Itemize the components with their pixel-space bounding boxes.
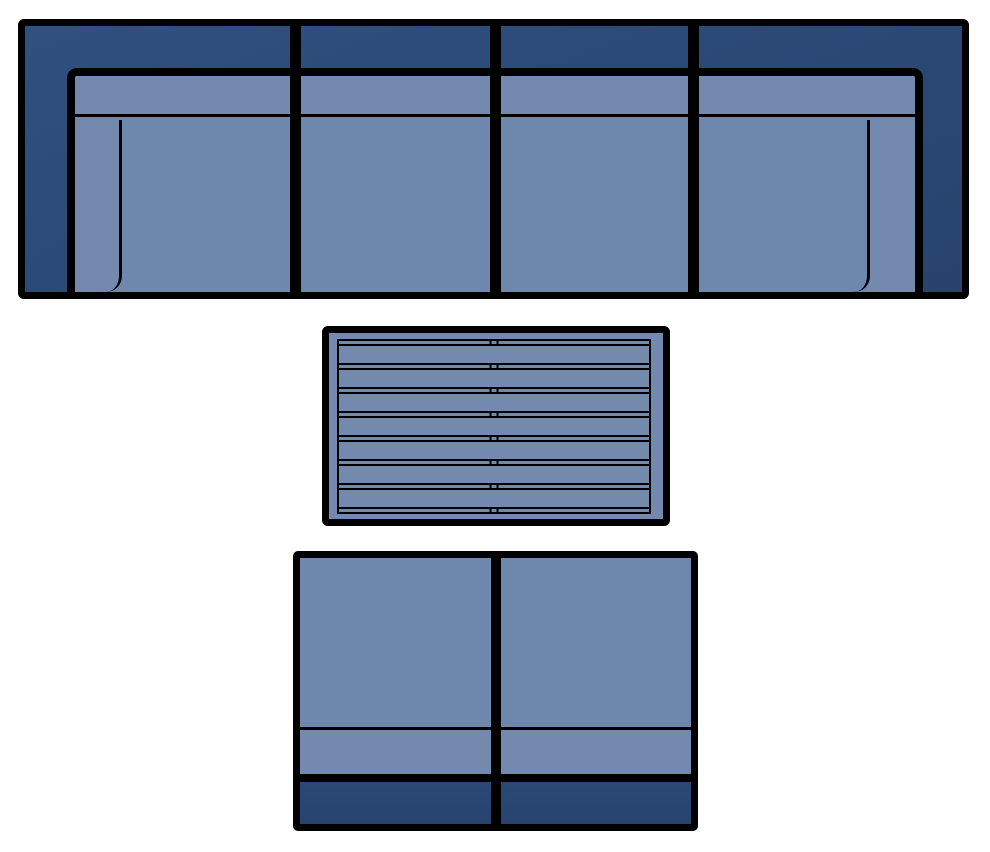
bench-section-armless-seat <box>300 558 496 824</box>
bench-back-frame <box>496 782 692 824</box>
sofa-right-arm-seam <box>852 120 870 292</box>
sofa-back-cushion <box>301 76 490 117</box>
bench-seat-cushion <box>496 558 692 727</box>
table-center-tick <box>490 461 499 464</box>
sofa-back-cushion <box>75 76 290 117</box>
sofa-back-cushion <box>699 76 915 117</box>
sofa-section-left-arm-seat <box>75 76 290 292</box>
table-center-tick <box>490 365 499 368</box>
sofa-section-armless-seat <box>301 76 490 292</box>
bench-back-cushion <box>496 730 692 774</box>
table-slat <box>339 346 649 363</box>
bench-back-frame-line <box>496 774 692 782</box>
table-slat-separator <box>339 363 649 370</box>
table-slat-separator <box>339 459 649 466</box>
sofa-seat-cushion <box>501 117 688 292</box>
bench-back-frame-line <box>300 774 496 782</box>
table-slat <box>339 466 649 483</box>
table-slat-separator <box>339 387 649 394</box>
bench-section-armless-seat <box>496 558 692 824</box>
table-slat <box>339 490 649 507</box>
sofa-seat-cushion <box>301 117 490 292</box>
sofa-left-arm-cushion <box>75 120 122 292</box>
coffee-table <box>322 326 670 526</box>
two-seat-bench <box>293 551 698 831</box>
sofa-section-divider <box>490 19 501 299</box>
table-center-tick <box>490 509 499 512</box>
table-center-tick <box>490 389 499 392</box>
sofa-section-armless-seat <box>501 76 688 292</box>
sofa-section-divider <box>688 19 699 299</box>
table-center-tick <box>490 341 499 344</box>
table-slat-separator <box>339 435 649 442</box>
sofa-section-right-arm-seat <box>699 76 915 292</box>
bench-seat-cushion <box>300 558 496 727</box>
bench-section-divider <box>491 558 501 824</box>
table-slat <box>339 394 649 411</box>
table-slat <box>339 418 649 435</box>
coffee-table-slat-panel <box>337 339 651 514</box>
table-center-tick <box>490 485 499 488</box>
table-slat <box>339 442 649 459</box>
bench-back-cushion <box>300 730 496 774</box>
table-slat-separator <box>339 339 649 346</box>
table-slat-separator <box>339 483 649 490</box>
table-slat <box>339 370 649 387</box>
furniture-plan-canvas <box>0 0 990 852</box>
sofa <box>18 19 969 299</box>
sofa-back-cushion <box>501 76 688 117</box>
table-slat-separator <box>339 411 649 418</box>
bench-back-frame <box>300 782 496 824</box>
sofa-right-arm-cushion <box>867 120 915 292</box>
sofa-section-divider <box>290 19 301 299</box>
table-center-tick <box>490 437 499 440</box>
table-slat-separator <box>339 507 649 514</box>
table-center-tick <box>490 413 499 416</box>
